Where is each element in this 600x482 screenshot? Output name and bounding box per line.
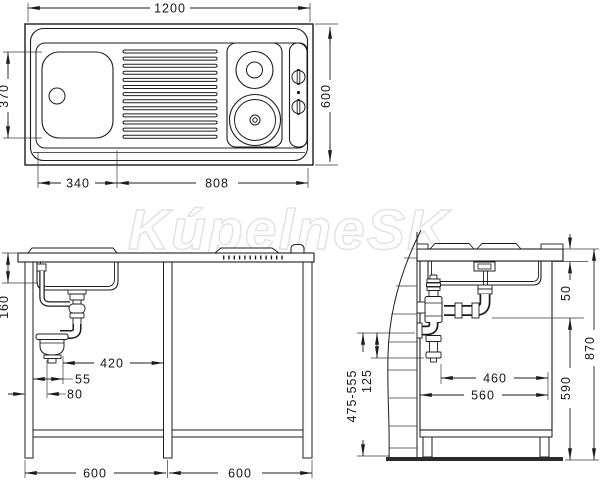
dim-hob-section-width: 808 (117, 177, 308, 191)
dim-outlet-height-range: 475-555 (345, 333, 415, 456)
dim-trap-side-offset: 55 (33, 373, 91, 387)
svg-text:55: 55 (75, 373, 91, 387)
dim-trap-front-offset: 80 (8, 360, 83, 402)
dim-right-module: 600 (169, 467, 312, 481)
indicator-dot (297, 91, 300, 94)
svg-text:475-555: 475-555 (345, 370, 359, 423)
drain-hole (49, 88, 65, 104)
hotplate-panel (227, 43, 282, 147)
svg-text:560: 560 (471, 389, 495, 403)
control-panel (290, 43, 308, 147)
leg (540, 437, 549, 457)
svg-text:600: 600 (319, 84, 333, 108)
knob-icon (292, 100, 305, 115)
leg (423, 437, 432, 457)
svg-text:460: 460 (483, 372, 507, 386)
floor-line (386, 457, 563, 461)
top-view: 1200 600 370 340 (0, 2, 338, 191)
watermark-text: KúpelneSK (128, 198, 452, 262)
svg-text:160: 160 (0, 295, 11, 319)
side-view: 50 870 590 460 (345, 230, 599, 461)
technical-drawing-sheet: KúpelneSK (0, 0, 600, 482)
dim-bowl-height: 160 (0, 253, 38, 319)
dim-left-module: 600 (25, 460, 312, 481)
svg-text:600: 600 (83, 467, 107, 481)
knob-front (291, 245, 304, 254)
sink-rim-section (430, 244, 474, 250)
bottom-shelf (420, 430, 552, 437)
hob-rim-profile (215, 248, 279, 253)
svg-text:340: 340 (66, 177, 90, 191)
drainboard (123, 50, 217, 138)
sink-rim-profile (28, 248, 117, 253)
worktop (18, 253, 314, 262)
svg-text:1200: 1200 (154, 2, 186, 16)
sink-bowl-plan (42, 52, 113, 138)
svg-text:50: 50 (559, 285, 573, 301)
sink-bowl-front (37, 262, 118, 290)
svg-text:125: 125 (360, 369, 374, 393)
drawing-canvas: KúpelneSK (0, 0, 600, 482)
svg-text:600: 600 (228, 467, 252, 481)
worktop-side (417, 249, 563, 261)
dim-overall-depth: 600 (315, 24, 338, 165)
dim-bowl-width: 340 (38, 150, 308, 191)
svg-text:808: 808 (205, 177, 229, 191)
wall-section (388, 230, 421, 458)
hob-rim-section (477, 244, 521, 250)
svg-text:370: 370 (0, 84, 11, 108)
knob-icon (292, 70, 305, 85)
svg-text:590: 590 (559, 376, 573, 400)
svg-text:870: 870 (583, 336, 597, 360)
overflow-fitting (474, 262, 495, 271)
svg-text:80: 80 (67, 388, 83, 402)
dim-overall-width: 1200 (28, 2, 310, 23)
svg-text:420: 420 (100, 357, 124, 371)
front-view: 160 420 55 80 (0, 245, 314, 481)
siphon-trap-front (36, 264, 86, 363)
